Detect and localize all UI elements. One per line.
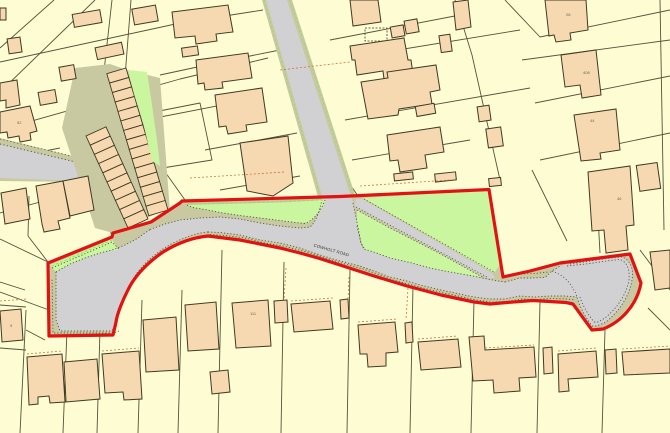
svg-text:44: 44 (590, 118, 595, 123)
svg-text:52: 52 (17, 120, 22, 125)
svg-text:28: 28 (566, 12, 571, 17)
svg-text:46: 46 (617, 196, 622, 201)
svg-text:408: 408 (583, 70, 590, 75)
svg-text:111: 111 (250, 311, 257, 316)
